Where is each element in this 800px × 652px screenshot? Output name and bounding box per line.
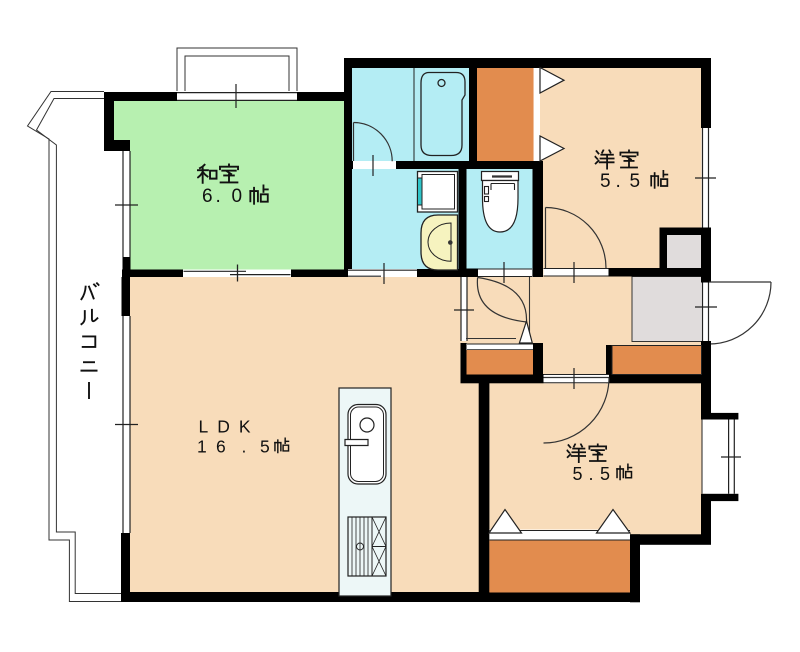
svg-text:.: .: [216, 186, 221, 207]
svg-text:.: .: [242, 437, 247, 457]
svg-text:6: 6: [202, 186, 213, 207]
svg-text:6: 6: [216, 437, 226, 457]
svg-text:5: 5: [573, 464, 583, 484]
svg-text:.: .: [616, 171, 621, 192]
svg-text:5: 5: [630, 171, 641, 192]
svg-text:5: 5: [600, 171, 611, 192]
svg-text:.: .: [589, 464, 594, 484]
svg-text:LDK: LDK: [199, 417, 260, 437]
svg-text:5: 5: [260, 437, 270, 457]
svg-text:0: 0: [232, 186, 243, 207]
svg-text:1: 1: [197, 437, 207, 457]
svg-text:5: 5: [600, 464, 610, 484]
